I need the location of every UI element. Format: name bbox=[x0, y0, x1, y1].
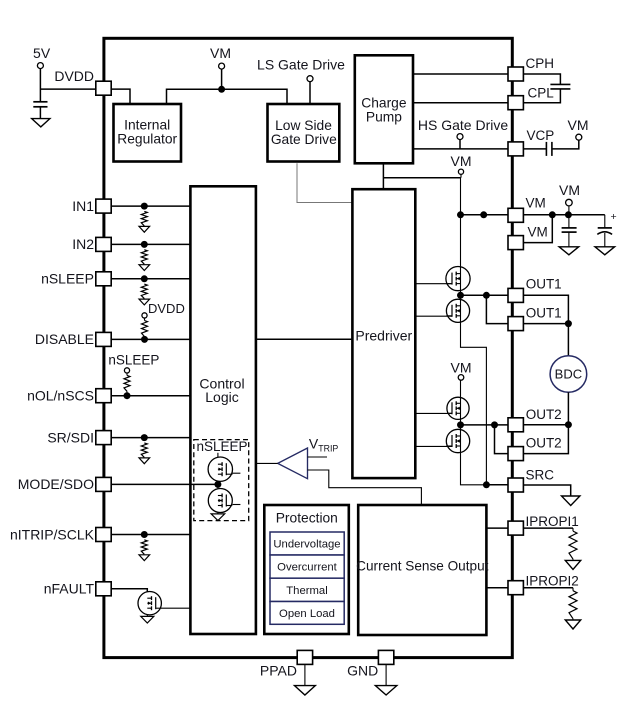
svg-text:CPL: CPL bbox=[528, 86, 555, 101]
svg-text:LS Gate Drive: LS Gate Drive bbox=[257, 56, 345, 72]
svg-text:Overcurrent: Overcurrent bbox=[277, 562, 338, 574]
svg-text:OUT1: OUT1 bbox=[526, 305, 562, 320]
svg-text:Charge: Charge bbox=[361, 95, 407, 110]
svg-text:OUT2: OUT2 bbox=[526, 407, 562, 422]
svg-text:HS Gate Drive: HS Gate Drive bbox=[418, 117, 508, 133]
svg-text:VM: VM bbox=[210, 45, 231, 61]
svg-text:Logic: Logic bbox=[205, 389, 238, 405]
svg-text:Pump: Pump bbox=[366, 109, 402, 124]
svg-text:BDC: BDC bbox=[555, 367, 582, 382]
svg-text:Gate Drive: Gate Drive bbox=[271, 132, 337, 147]
svg-text:IN2: IN2 bbox=[72, 236, 94, 252]
svg-text:Current Sense Output: Current Sense Output bbox=[356, 558, 488, 573]
svg-text:VCP: VCP bbox=[527, 128, 555, 143]
svg-text:VM: VM bbox=[526, 196, 546, 211]
svg-text:MODE/SDO: MODE/SDO bbox=[18, 476, 94, 492]
svg-text:IN1: IN1 bbox=[72, 198, 94, 214]
svg-text:Regulator: Regulator bbox=[117, 132, 177, 147]
svg-text:GND: GND bbox=[347, 663, 378, 679]
svg-text:nSLEEP: nSLEEP bbox=[41, 271, 94, 287]
svg-text:CPH: CPH bbox=[526, 56, 555, 71]
svg-text:nSLEEP: nSLEEP bbox=[197, 439, 248, 454]
svg-text:Low Side: Low Side bbox=[275, 118, 332, 133]
svg-text:Protection: Protection bbox=[276, 510, 338, 525]
svg-text:DVDD: DVDD bbox=[54, 68, 94, 84]
svg-text:IPROPI2: IPROPI2 bbox=[526, 574, 579, 589]
svg-text:SRC: SRC bbox=[526, 467, 555, 482]
svg-text:PPAD: PPAD bbox=[260, 663, 297, 679]
svg-text:VM: VM bbox=[451, 153, 472, 169]
svg-text:Internal: Internal bbox=[124, 118, 170, 133]
svg-text:SR/SDI: SR/SDI bbox=[47, 429, 94, 445]
svg-text:nFAULT: nFAULT bbox=[44, 581, 95, 597]
svg-text:DISABLE: DISABLE bbox=[35, 331, 94, 347]
svg-text:DVDD: DVDD bbox=[148, 301, 185, 316]
svg-text:nSLEEP: nSLEEP bbox=[108, 352, 159, 367]
svg-text:Predriver: Predriver bbox=[355, 327, 412, 343]
svg-text:OUT2: OUT2 bbox=[526, 436, 562, 451]
svg-text:OUT1: OUT1 bbox=[526, 276, 562, 291]
svg-text:nITRIP/SCLK: nITRIP/SCLK bbox=[10, 526, 95, 542]
svg-text:VM: VM bbox=[559, 182, 580, 198]
svg-text:Undervoltage: Undervoltage bbox=[273, 538, 340, 550]
svg-text:Open Load: Open Load bbox=[279, 608, 335, 620]
svg-text:5V: 5V bbox=[33, 45, 51, 61]
svg-text:VM: VM bbox=[451, 359, 472, 375]
svg-text:Thermal: Thermal bbox=[286, 585, 327, 597]
svg-text:VM: VM bbox=[568, 117, 589, 133]
svg-text:IPROPI1: IPROPI1 bbox=[526, 514, 579, 529]
svg-text:+: + bbox=[611, 211, 617, 223]
svg-text:VM: VM bbox=[528, 224, 548, 239]
svg-text:nOL/nSCS: nOL/nSCS bbox=[27, 388, 94, 404]
